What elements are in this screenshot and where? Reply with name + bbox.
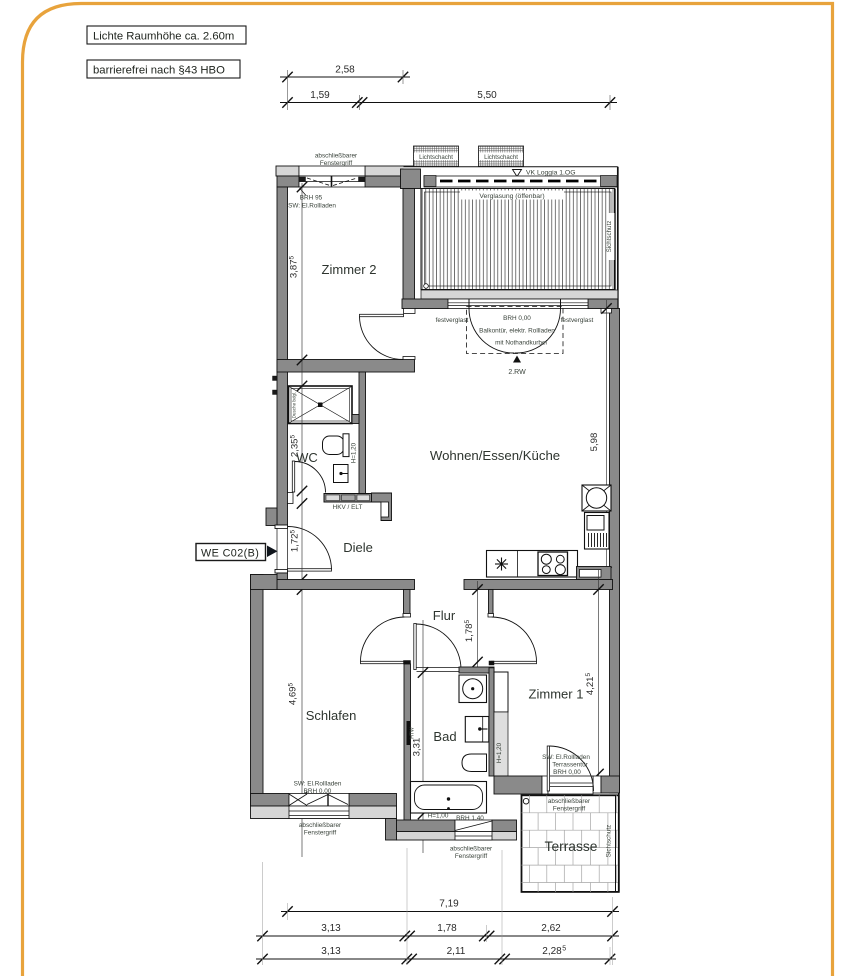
svg-text:5,50: 5,50 (477, 90, 497, 101)
svg-text:Zimmer 1: Zimmer 1 (529, 687, 584, 702)
svg-text:Schlafen: Schlafen (306, 708, 357, 723)
svg-text:2,58: 2,58 (335, 65, 355, 76)
svg-text:abschließbarer: abschließbarer (315, 153, 358, 160)
svg-text:abschließbarer: abschließbarer (548, 798, 591, 805)
svg-text:Wohnen/Essen/Küche: Wohnen/Essen/Küche (430, 448, 560, 463)
svg-text:Lichte Raumhöhe ca. 2.60m: Lichte Raumhöhe ca. 2.60m (93, 31, 234, 43)
svg-text:7,19: 7,19 (439, 899, 459, 910)
svg-text:festverglast: festverglast (561, 317, 594, 324)
svg-text:3,13: 3,13 (321, 923, 341, 934)
svg-text:Flur: Flur (433, 608, 456, 623)
svg-text:Dusche bdgl.: Dusche bdgl. (292, 392, 297, 419)
svg-text:mit Nothandkurbel: mit Nothandkurbel (495, 340, 547, 347)
svg-text:barrierefrei nach §43 HBO: barrierefrei nach §43 HBO (93, 65, 225, 77)
svg-text:BRH 0,00: BRH 0,00 (304, 788, 332, 795)
svg-text:3,13: 3,13 (321, 946, 341, 957)
svg-text:HKV / ELT: HKV / ELT (333, 504, 363, 511)
svg-text:Fenstergriff: Fenstergriff (320, 160, 352, 167)
svg-text:Balkontür, elektr. Rollladen: Balkontür, elektr. Rollladen (479, 328, 555, 335)
svg-text:abschließbarer: abschließbarer (450, 846, 493, 853)
svg-text:2.RW: 2.RW (508, 369, 526, 376)
svg-text:BRH 0,00: BRH 0,00 (503, 315, 531, 322)
svg-text:SW: El.Rollladen: SW: El.Rollladen (542, 754, 590, 761)
svg-text:BRH 0,00: BRH 0,00 (553, 769, 581, 776)
svg-text:Lichtschacht: Lichtschacht (484, 154, 518, 161)
svg-text:abschließbarer: abschließbarer (299, 822, 342, 829)
svg-text:Bad: Bad (433, 729, 456, 744)
svg-text:Fenstergriff: Fenstergriff (553, 806, 585, 813)
svg-text:5,98: 5,98 (589, 433, 600, 452)
svg-text:Sichtschutz: Sichtschutz (606, 221, 613, 253)
svg-text:5: 5 (562, 946, 566, 953)
svg-text:HTW: HTW (410, 727, 416, 739)
svg-text:SW: El.Rollladen: SW: El.Rollladen (294, 781, 342, 788)
svg-text:Zimmer 2: Zimmer 2 (322, 262, 377, 277)
svg-text:2,62: 2,62 (541, 923, 561, 934)
svg-text:Terrasse: Terrasse (545, 839, 598, 854)
svg-text:BRH 95: BRH 95 (300, 195, 323, 202)
svg-text:Fenstergriff: Fenstergriff (455, 853, 487, 860)
svg-text:H=1,00: H=1,00 (428, 813, 449, 820)
svg-text:2,11: 2,11 (447, 946, 466, 957)
svg-text:1,59: 1,59 (310, 90, 330, 101)
svg-text:festverglast: festverglast (436, 317, 469, 324)
svg-text:H=1,20: H=1,20 (351, 442, 358, 463)
svg-text:2,28: 2,28 (542, 946, 562, 957)
svg-text:3,31: 3,31 (412, 738, 423, 757)
svg-text:WE C02(B): WE C02(B) (201, 548, 259, 560)
svg-text:Verglasung (öffenbar): Verglasung (öffenbar) (479, 193, 544, 200)
svg-text:SW: El.Rollladen: SW: El.Rollladen (288, 203, 336, 210)
svg-text:Sichtschutz: Sichtschutz (605, 825, 612, 858)
svg-text:Lichtschacht: Lichtschacht (419, 154, 453, 161)
svg-text:Diele: Diele (343, 540, 373, 555)
svg-text:VK Loggia 1.OG: VK Loggia 1.OG (526, 170, 576, 177)
svg-text:1,78: 1,78 (437, 923, 457, 934)
svg-text:Fenstergriff: Fenstergriff (304, 830, 336, 837)
svg-text:Terrassentür: Terrassentür (552, 762, 588, 769)
svg-text:H=1,20: H=1,20 (496, 742, 503, 763)
